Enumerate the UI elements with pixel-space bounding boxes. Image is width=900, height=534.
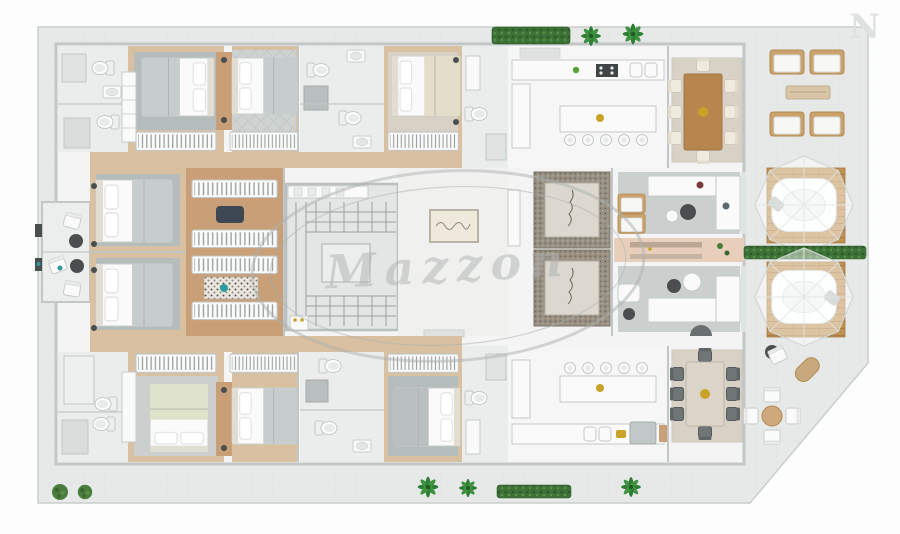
walkin-closet-b xyxy=(186,252,284,336)
bathroom-kitchen-side-top xyxy=(462,46,508,168)
walkin-closet-a xyxy=(186,168,284,252)
toilet-icon xyxy=(97,115,119,129)
bedroom-4 xyxy=(122,352,224,462)
dining-chair-icon xyxy=(725,80,739,93)
walkin-shower xyxy=(64,356,94,404)
centerpiece-icon xyxy=(698,107,708,117)
closet-rack-icon xyxy=(136,132,216,150)
throw-pillow xyxy=(697,182,704,189)
kitchen-island xyxy=(560,376,656,402)
spa-canopy-icon xyxy=(755,156,853,254)
bedroom-1 xyxy=(122,46,224,152)
floor-plan-render: Mazzon N xyxy=(0,0,900,534)
bedroom-5 xyxy=(230,352,298,462)
dining-chair-icon xyxy=(699,348,712,362)
lamp-icon xyxy=(453,119,459,125)
lamp-icon xyxy=(91,241,97,247)
dining-chair-icon xyxy=(725,132,739,145)
palm-icon xyxy=(581,26,601,46)
lamp-icon xyxy=(453,57,459,63)
ottoman xyxy=(216,206,244,223)
armchair-icon xyxy=(810,112,844,136)
stool-icon xyxy=(601,135,612,146)
balcony-table-icon xyxy=(69,234,83,248)
lamp-icon xyxy=(221,57,227,63)
closet-rack-icon xyxy=(136,354,216,372)
terrace-spa-top xyxy=(755,156,853,254)
toilet-icon xyxy=(93,417,115,431)
tall-cabinet xyxy=(512,360,530,418)
sofa-chaise xyxy=(716,176,740,230)
dining-chair-icon xyxy=(670,408,684,421)
closet-rack-icon xyxy=(192,180,277,198)
palm-icon xyxy=(621,477,641,497)
master-bedroom-a xyxy=(90,168,186,252)
closet-rack-icon xyxy=(388,354,458,372)
lamp-icon xyxy=(91,325,97,331)
dining-room-top xyxy=(668,58,742,164)
master-bedroom-b xyxy=(90,252,186,336)
bed-icon xyxy=(150,384,208,452)
lamp-icon xyxy=(91,267,97,273)
dining-chair-icon xyxy=(727,388,741,401)
shower-tray xyxy=(304,86,328,110)
lamp-icon xyxy=(91,183,97,189)
armchair-icon xyxy=(770,50,804,74)
dining-chair-icon xyxy=(697,58,710,72)
sink-icon xyxy=(103,86,121,98)
unit-top xyxy=(58,46,742,168)
armchair-icon xyxy=(810,50,844,74)
outdoor-chair-icon xyxy=(786,408,801,424)
stool-icon xyxy=(583,135,594,146)
decor-bowl-icon xyxy=(596,114,604,122)
dining-chair-icon xyxy=(727,408,741,421)
closet-rack-icon xyxy=(192,256,277,274)
window-glass xyxy=(741,266,746,332)
outdoor-chair-icon xyxy=(744,408,759,424)
dining-chair-icon xyxy=(668,132,682,145)
cooktop-icon xyxy=(596,64,618,77)
dining-chair-icon xyxy=(670,368,684,381)
bed-icon xyxy=(96,264,172,326)
stool-icon xyxy=(565,135,576,146)
sink-icon xyxy=(353,136,371,148)
stool-icon xyxy=(619,363,630,374)
stool-icon xyxy=(565,363,576,374)
balcony-table-icon xyxy=(70,259,84,273)
toilet-icon xyxy=(92,61,114,75)
bed-icon xyxy=(232,388,298,444)
dining-chair-icon xyxy=(670,388,684,401)
living-room-top xyxy=(618,172,740,234)
toilet-icon xyxy=(465,391,487,405)
sofa-chaise xyxy=(716,276,740,322)
palm-icon xyxy=(459,479,477,497)
coffee-table-icon xyxy=(667,279,681,293)
decor-bowl-icon xyxy=(596,384,604,392)
bed-icon xyxy=(96,180,172,242)
corridor-top xyxy=(90,152,462,168)
plant-bowl-icon xyxy=(573,67,579,73)
round-table-icon xyxy=(762,406,782,426)
closet-rack-icon xyxy=(230,354,298,372)
bush-icon xyxy=(78,485,92,499)
bedroom-6 xyxy=(384,352,462,462)
lamp-icon xyxy=(221,445,227,451)
coffee-table-icon xyxy=(666,210,678,222)
shower-tray xyxy=(306,380,328,402)
centerpiece-icon xyxy=(700,389,710,399)
sink-icon xyxy=(347,50,365,62)
palm-icon xyxy=(623,24,644,45)
range-icon xyxy=(630,422,656,444)
terrace-spa-bottom xyxy=(755,248,853,346)
plant-icon xyxy=(717,243,723,249)
hedge-top xyxy=(492,27,570,44)
dining-room-bottom xyxy=(670,348,742,442)
dining-chair-icon xyxy=(725,106,739,119)
closet-cubby xyxy=(122,72,136,142)
coffee-table-icon xyxy=(680,204,696,220)
lamp-icon xyxy=(221,387,227,393)
living-room-bottom xyxy=(618,266,740,336)
decor xyxy=(616,430,626,438)
toilet-icon xyxy=(315,421,337,435)
bathroom-mid-top xyxy=(300,46,384,152)
basin xyxy=(645,63,657,77)
basin xyxy=(630,63,642,77)
bathroom-mid-bottom xyxy=(300,352,384,462)
closet-rack-icon xyxy=(388,132,458,150)
toilet-icon xyxy=(319,359,341,373)
basin xyxy=(584,427,596,441)
hedge-bottom xyxy=(497,485,571,498)
bedroom-2 xyxy=(230,46,298,152)
bush-icon xyxy=(52,484,68,500)
bed-icon xyxy=(232,58,298,114)
kitchen-bottom xyxy=(508,346,668,462)
bathroom-kitchen-side-bottom xyxy=(462,346,508,462)
window-glass xyxy=(741,172,746,234)
dining-chair-icon xyxy=(668,106,682,119)
dining-chair-icon xyxy=(727,368,741,381)
shower-tray xyxy=(62,420,88,454)
mosaic-mat xyxy=(204,277,258,299)
closet-cubby xyxy=(122,372,136,442)
hall-band xyxy=(614,238,744,262)
lamp-icon xyxy=(221,117,227,123)
stool-icon xyxy=(601,363,612,374)
balcony-chair-icon xyxy=(63,280,81,297)
dining-chair-icon xyxy=(699,427,712,441)
toilet-icon xyxy=(307,63,329,77)
entry-door-sill xyxy=(424,330,464,337)
kitchen-island xyxy=(560,106,656,132)
outdoor-chair-icon xyxy=(764,388,780,403)
toilet-icon xyxy=(95,397,117,411)
cabinet-door xyxy=(659,425,667,442)
vanity xyxy=(466,420,480,454)
shower-tray xyxy=(486,134,506,160)
dining-chair-icon xyxy=(697,151,710,165)
corner-watermark-letter: N xyxy=(849,7,880,47)
stool-icon xyxy=(619,135,630,146)
corridor-bottom xyxy=(90,336,462,352)
decor-accent xyxy=(220,284,228,292)
sink-icon xyxy=(353,440,371,452)
bedroom-3 xyxy=(384,46,462,152)
wall-shelf xyxy=(35,224,42,237)
side-table-icon xyxy=(623,308,635,320)
shower-tray xyxy=(64,118,90,148)
bed-icon xyxy=(394,388,460,446)
washer-icon xyxy=(290,316,308,330)
sideboard xyxy=(630,254,702,259)
throw-pillow xyxy=(723,203,730,210)
bed-icon xyxy=(142,58,214,116)
dining-chair-icon xyxy=(668,80,682,93)
toilet-icon xyxy=(339,111,361,125)
closet-rack-icon xyxy=(230,132,298,150)
armchair-icon xyxy=(770,112,804,136)
spa-canopy-icon xyxy=(755,248,853,346)
plant-icon xyxy=(725,251,730,256)
bed-icon xyxy=(392,56,460,116)
shower-tray xyxy=(62,54,86,82)
tall-cabinet xyxy=(512,84,530,148)
toilet-icon xyxy=(465,107,487,121)
stool-icon xyxy=(637,363,648,374)
coffee-table-icon xyxy=(683,273,701,291)
armchair-icon xyxy=(618,194,645,213)
palm-icon xyxy=(418,477,439,498)
outdoor-chair-icon xyxy=(764,430,780,445)
vanity xyxy=(466,56,480,90)
towel-accent xyxy=(58,266,63,271)
basin xyxy=(599,427,611,441)
stool-icon xyxy=(583,363,594,374)
nightstand-band xyxy=(216,382,232,456)
stool-icon xyxy=(637,135,648,146)
